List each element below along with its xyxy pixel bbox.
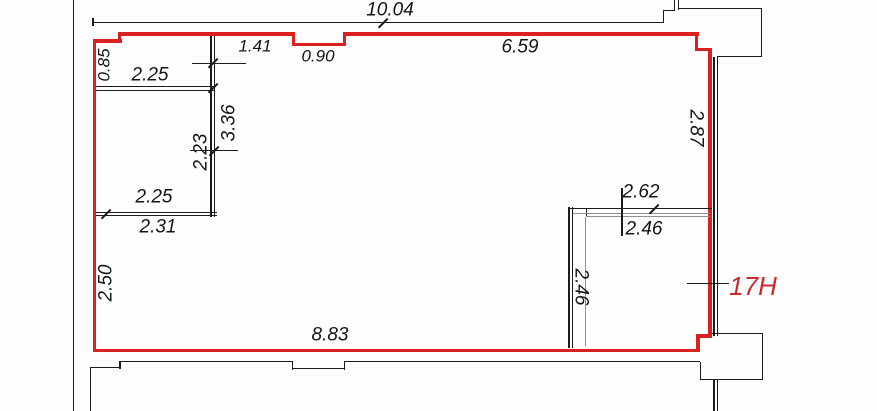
unit-boundary-right	[708, 48, 712, 338]
dim-label-246-side: 2.46	[572, 269, 591, 306]
shaft-right-line	[762, 333, 764, 380]
building-outline-right-v	[761, 8, 762, 57]
dim-label-231: 2.31	[140, 218, 177, 237]
building-outline-stub-v1	[674, 0, 675, 10]
right-room-top-wall-light1	[573, 213, 710, 214]
dim-label-225-mid: 2.25	[136, 188, 173, 207]
unit-boundary-top-c	[343, 32, 699, 36]
shaft-top-line	[712, 333, 763, 335]
right-party-wall-lower2	[717, 380, 718, 411]
unit-number-label: 17H	[729, 273, 777, 299]
dim-label-top-total: 10.04	[366, 1, 414, 20]
dim-label-090: 0.90	[301, 48, 334, 65]
partition-wall-h1b	[96, 90, 215, 91]
floor-plan-canvas: 10.04 1.41 0.90 6.59 0.85 2.25 3.36 2.23…	[0, 0, 877, 411]
lower-outline-notch-right	[344, 361, 345, 370]
unit-boundary-bottom	[93, 349, 700, 353]
right-party-wall-line1	[713, 57, 714, 336]
top-dimension-end-tick	[92, 18, 93, 26]
partition-wall-h2a	[96, 212, 217, 214]
dim-extension-line-upper	[192, 63, 246, 64]
dim-label-287: 2.87	[687, 110, 706, 147]
dim-label-223: 2.23	[192, 134, 211, 171]
unit-label-leader-line	[687, 283, 729, 284]
shaft-left-line	[700, 362, 702, 380]
dim-label-659: 6.59	[502, 38, 539, 57]
shaft-bottom-line	[700, 379, 763, 381]
dim-label-336: 3.36	[220, 105, 239, 142]
unit-boundary-top-b	[118, 32, 295, 36]
partition-wall-h1a	[96, 86, 215, 87]
lower-outline-left-v	[90, 367, 91, 411]
right-room-dim-line	[570, 208, 712, 209]
dim-label-141: 1.41	[238, 38, 271, 55]
neighbor-wall-line	[73, 0, 75, 411]
top-dimension-line	[93, 22, 663, 24]
lower-outline-h2	[344, 361, 700, 363]
unit-boundary-notch-bottom	[292, 43, 347, 47]
lower-outline-h1	[120, 361, 293, 363]
lower-outline-left-h	[90, 367, 120, 368]
right-room-top-wall-light2	[586, 216, 710, 217]
building-outline-bottom-h	[717, 56, 762, 57]
building-outline-top-h	[678, 8, 762, 9]
dim-label-225-top: 2.25	[132, 66, 169, 85]
right-room-left-wall1	[568, 207, 569, 348]
dim-label-246-top: 2.46	[626, 220, 663, 239]
lower-outline-notch-bottom	[292, 368, 345, 369]
dim-label-085: 0.85	[96, 48, 113, 81]
right-party-wall-lower1	[713, 380, 714, 411]
dim-label-250: 2.50	[97, 265, 116, 302]
dim-label-883: 8.83	[312, 326, 349, 345]
dim-label-262: 2.62	[623, 183, 660, 202]
right-party-wall-line2	[717, 57, 718, 336]
dim-tick	[101, 209, 111, 219]
building-outline-step-v	[663, 10, 664, 23]
